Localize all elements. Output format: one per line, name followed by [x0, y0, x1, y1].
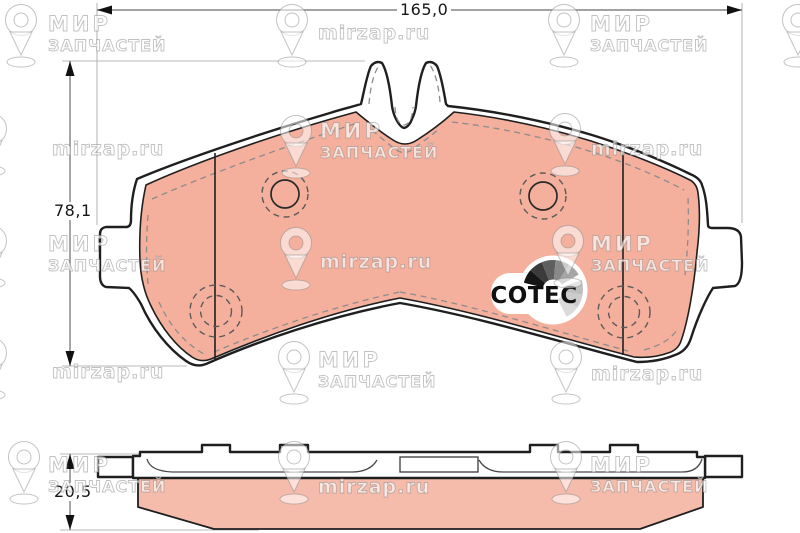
- right-ear-tab: [705, 456, 742, 477]
- brake-pad-technical-drawing: COTEC 165,0 78,1 20,5 МИР ЗАПЧАСТЕЙ mirz…: [0, 0, 800, 533]
- front-view: COTEC: [100, 62, 742, 365]
- left-ear-tab: [98, 457, 133, 477]
- height-dimension-label: 78,1: [51, 202, 95, 220]
- thickness-dimension-label: 20,5: [51, 483, 95, 501]
- friction-material-side: [138, 478, 703, 529]
- bottom-view: [98, 445, 742, 529]
- technical-drawing-svg: COTEC: [0, 0, 800, 533]
- cotec-logo-text: COTEC: [490, 283, 577, 309]
- width-dimension-label: 165,0: [397, 1, 451, 19]
- backing-plate-side: [133, 445, 705, 478]
